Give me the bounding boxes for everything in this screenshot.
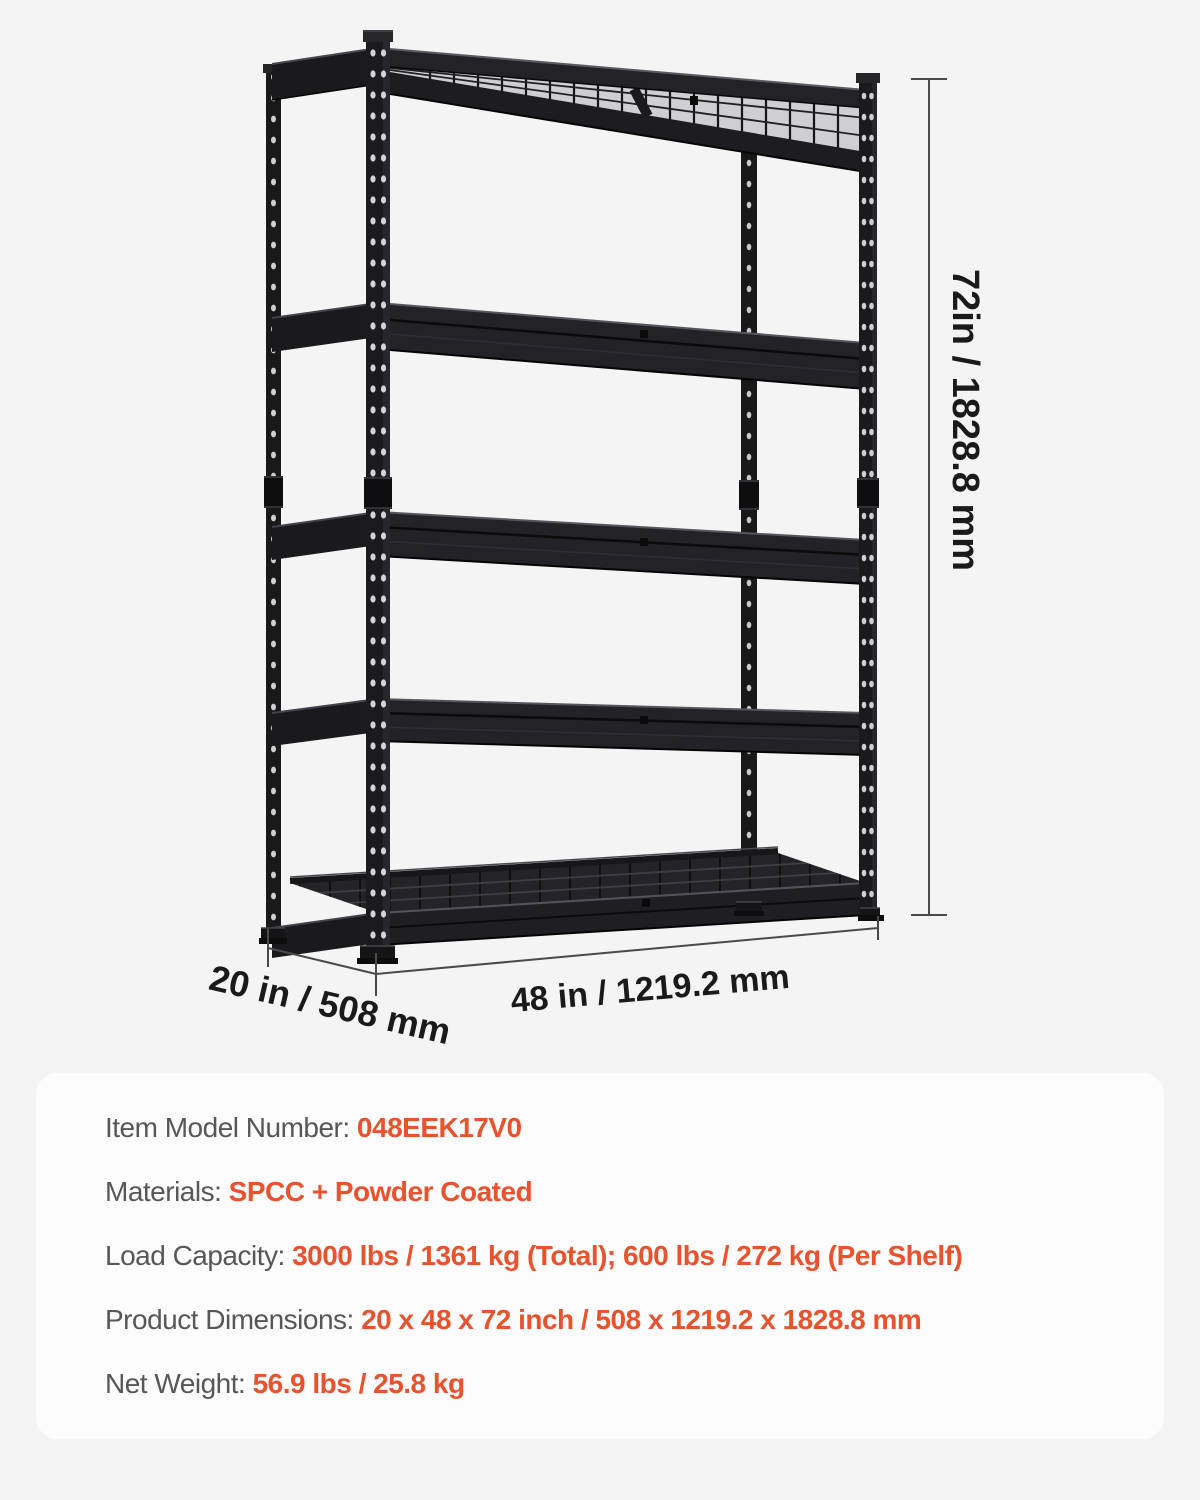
post-cap-front-right bbox=[856, 73, 880, 83]
width-dimension-label: 48 in / 1219.2 mm bbox=[509, 958, 791, 1020]
spec-label-dimensions: Product Dimensions: bbox=[105, 1304, 361, 1335]
spec-value-load-capacity: 3000 lbs / 1361 kg (Total); 600 lbs / 27… bbox=[292, 1240, 962, 1271]
height-dimension: 72in / 1828.8 mm bbox=[911, 79, 986, 915]
spec-row-materials: Materials: SPCC + Powder Coated bbox=[105, 1177, 1134, 1207]
shelf-2-center-bracket bbox=[640, 330, 648, 338]
spec-row-model: Item Model Number: 048EEK17V0 bbox=[105, 1113, 1134, 1143]
spec-value-model: 048EEK17V0 bbox=[357, 1112, 522, 1143]
shelf-4-center-bracket bbox=[640, 716, 648, 724]
spec-value-dimensions: 20 x 48 x 72 inch / 508 x 1219.2 x 1828.… bbox=[361, 1304, 921, 1335]
spec-label-load-capacity: Load Capacity: bbox=[105, 1240, 292, 1271]
foot-back-left bbox=[259, 928, 287, 944]
height-dimension-label: 72in / 1828.8 mm bbox=[944, 269, 986, 571]
shelf-level-2 bbox=[272, 303, 866, 389]
shelf-level-1 bbox=[272, 48, 866, 172]
shelf-5-center-bracket bbox=[642, 899, 650, 907]
shelf-2-front-beam bbox=[378, 303, 866, 389]
post-back-right bbox=[741, 128, 757, 906]
spec-row-weight: Net Weight: 56.9 lbs / 25.8 kg bbox=[105, 1369, 1134, 1399]
spec-row-dimensions: Product Dimensions: 20 x 48 x 72 inch / … bbox=[105, 1305, 1134, 1335]
spec-panel: Item Model Number: 048EEK17V0 Materials:… bbox=[36, 1073, 1164, 1439]
foot-back-right bbox=[734, 902, 764, 916]
shelf-4-front-beam bbox=[378, 699, 866, 755]
spec-label-model: Item Model Number: bbox=[105, 1112, 357, 1143]
shelf-3-center-bracket bbox=[640, 538, 648, 546]
shelving-unit-figure: 72in / 1828.8 mm 20 in / 508 mm 48 in / … bbox=[0, 0, 1200, 1060]
shelf-level-3 bbox=[272, 512, 866, 584]
spec-row-load-capacity: Load Capacity: 3000 lbs / 1361 kg (Total… bbox=[105, 1241, 1134, 1271]
foot-front-right bbox=[858, 908, 884, 921]
shelf-level-4 bbox=[272, 699, 866, 755]
spec-label-weight: Net Weight: bbox=[105, 1368, 253, 1399]
shelf-3-front-beam bbox=[378, 512, 866, 584]
spec-value-weight: 56.9 lbs / 25.8 kg bbox=[253, 1368, 465, 1399]
product-illustration-area: 72in / 1828.8 mm 20 in / 508 mm 48 in / … bbox=[0, 0, 1200, 1060]
post-cap-front-left bbox=[363, 31, 393, 42]
spec-value-materials: SPCC + Powder Coated bbox=[229, 1176, 533, 1207]
shelf-1-center-bracket bbox=[690, 96, 698, 105]
height-dimension-line bbox=[911, 79, 947, 915]
post-connector-sleeves bbox=[264, 476, 879, 510]
shelf-level-5 bbox=[272, 840, 870, 958]
foot-front-left bbox=[357, 946, 398, 964]
spec-label-materials: Materials: bbox=[105, 1176, 229, 1207]
